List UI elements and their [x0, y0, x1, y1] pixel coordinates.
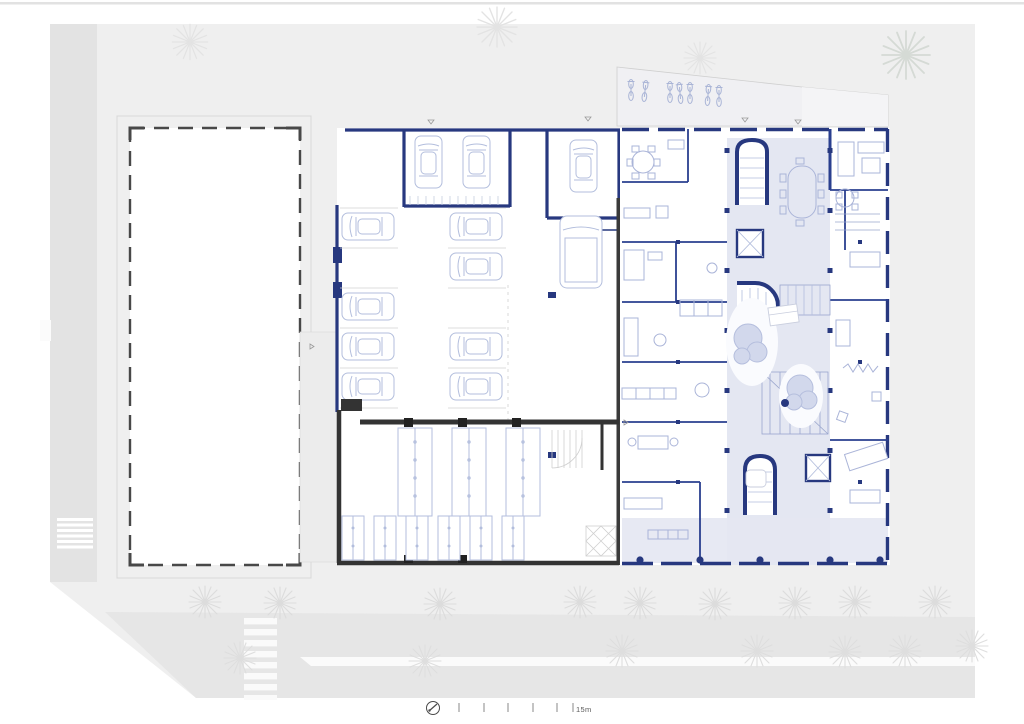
north-arrow-icon: [427, 702, 440, 715]
site-marker: [40, 320, 51, 341]
floor-plan-sheet: 15m: [0, 0, 1024, 724]
passage-strip: [300, 332, 337, 562]
sheet-top-line: [0, 2, 1024, 5]
road-center-line: [300, 657, 975, 666]
van: [560, 216, 602, 288]
site-tree-large: [882, 31, 930, 79]
existing-building-walls: [130, 128, 300, 565]
scale-ticks: [459, 703, 573, 712]
arcade-strip: [622, 518, 888, 563]
floor-plan-drawing: 15m: [0, 0, 1024, 724]
scale-bar: 15m: [427, 702, 592, 715]
side-road-band: [50, 24, 97, 582]
existing-building: [117, 116, 311, 578]
column: [548, 292, 556, 298]
scale-label: 15m: [576, 705, 592, 714]
courtyard-table: [768, 304, 799, 326]
